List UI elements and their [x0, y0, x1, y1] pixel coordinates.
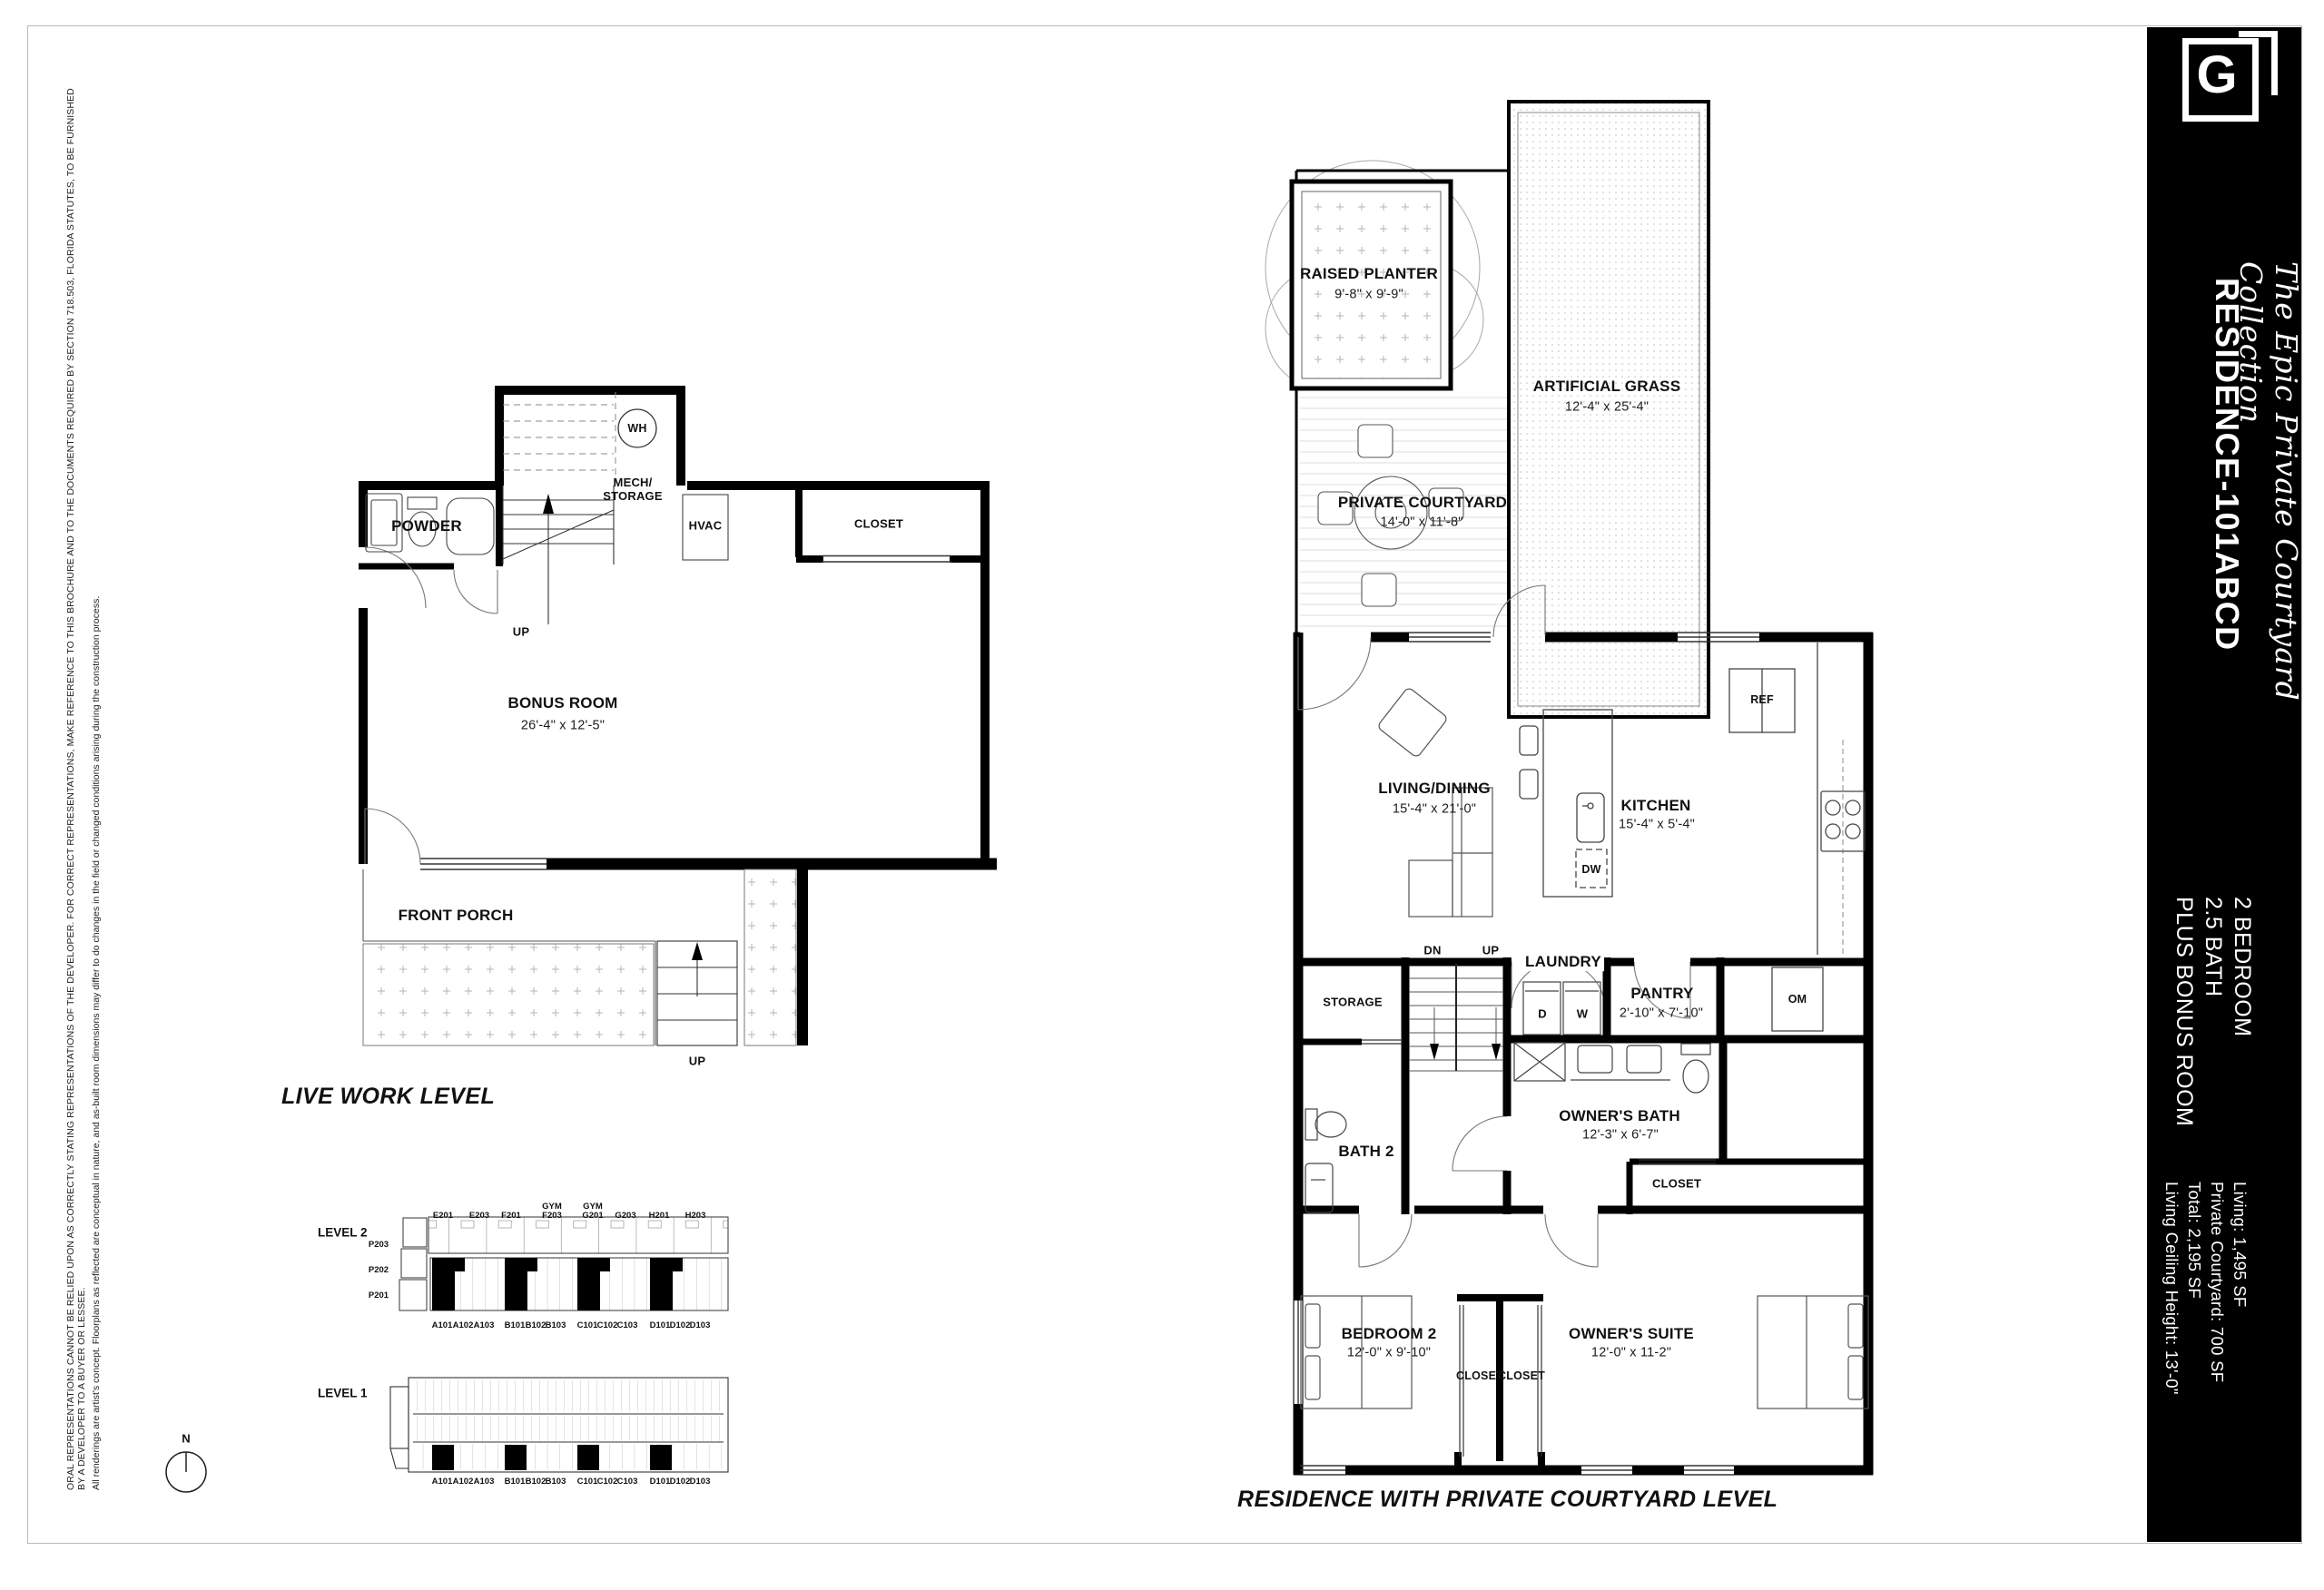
unit-label: A101	[432, 1321, 453, 1330]
north-compass	[154, 1425, 227, 1497]
brand-logo-letter: G	[2185, 44, 2249, 107]
brochure-page: ORAL REPRESENTATIONS CANNOT BE RELIED UP…	[0, 0, 2324, 1590]
door-swings	[365, 547, 497, 864]
compass-north-label: N	[182, 1433, 191, 1447]
room-dim-bonus-room: 26'-4" x 12'-5"	[521, 719, 605, 734]
unit-label: A101	[432, 1477, 453, 1487]
unit-label: C102	[597, 1477, 618, 1487]
room-label-living-dining: LIVING/DINING	[1378, 780, 1491, 798]
stat-ceiling: Living Ceiling Height: 13'-0"	[2160, 1182, 2182, 1481]
unit-label: E201	[433, 1212, 453, 1221]
entry-up-label: UP	[689, 1055, 705, 1069]
unit-label: A102	[453, 1477, 474, 1487]
unit-label: D101	[650, 1477, 671, 1487]
unit-label: A103	[474, 1321, 495, 1330]
unit-label: D103	[690, 1321, 711, 1330]
label-om: OM	[1788, 993, 1807, 1006]
room-label-closet: CLOSET	[854, 518, 903, 532]
room-dim-bedroom2: 12'-0" x 9'-10"	[1347, 1346, 1431, 1361]
unit-label: B103	[546, 1477, 566, 1487]
room-label-raised-planter: RAISED PLANTER	[1300, 265, 1438, 283]
unit-label: B103	[546, 1321, 566, 1330]
label-washer: W	[1577, 1008, 1588, 1022]
legal-disclaimer: ORAL REPRESENTATIONS CANNOT BE RELIED UP…	[65, 74, 102, 1490]
unit-label: D102	[670, 1321, 691, 1330]
residence-name: RESIDENCE-101ABCD	[2201, 278, 2246, 695]
stair-up-arrow	[1492, 1044, 1501, 1060]
room-label-mech-storage: MECH/ STORAGE	[603, 476, 662, 504]
thin-partitions	[1362, 1040, 1716, 1457]
unit-label: GYM F203	[542, 1202, 562, 1221]
level2-label: LEVEL 2	[318, 1226, 368, 1240]
room-label-closet-right: CLOSET	[1498, 1369, 1545, 1382]
residence-features: 2 BEDROOM 2.5 BATH PLUS BONUS ROOM	[2188, 897, 2257, 1205]
room-dim-owners-suite: 12'-0" x 11-2"	[1591, 1346, 1671, 1361]
unit-label: B101	[505, 1477, 526, 1487]
room-label-front-porch: FRONT PORCH	[399, 907, 514, 925]
unit-label: B102	[526, 1321, 547, 1330]
label-dryer: D	[1538, 1008, 1547, 1022]
unit-label: P201	[369, 1291, 389, 1300]
stat-living: Living: 1,495 SF	[2228, 1182, 2250, 1481]
room-label-wh: WH	[627, 422, 646, 435]
stat-courtyard: Private Courtyard: 700 SF	[2205, 1182, 2228, 1481]
stair-dn-arrow	[1430, 1044, 1439, 1060]
room-dim-raised-planter: 9'-8" x 9'-9"	[1334, 288, 1403, 303]
main-stair	[1409, 964, 1503, 1071]
unit-label: C103	[617, 1321, 638, 1330]
unit-label: B102	[526, 1477, 547, 1487]
plan-title-courtyard-level: RESIDENCE WITH PRIVATE COURTYARD LEVEL	[1237, 1487, 1777, 1513]
unit-label: P202	[369, 1266, 389, 1275]
room-label-owners-suite: OWNER'S SUITE	[1569, 1325, 1694, 1343]
unit-label: G203	[615, 1212, 635, 1221]
plan-title-live-work: LIVE WORK LEVEL	[281, 1084, 495, 1110]
unit-label: D103	[690, 1477, 711, 1487]
live-work-floorplan	[272, 363, 1017, 1107]
unit-label: E203	[469, 1212, 489, 1221]
feature-baths: 2.5 BATH	[2199, 897, 2228, 1205]
disclaimer-line-1: ORAL REPRESENTATIONS CANNOT BE RELIED UP…	[65, 74, 87, 1490]
unit-label: A103	[474, 1477, 495, 1487]
unit-label: B101	[505, 1321, 526, 1330]
room-label-laundry: LAUNDRY	[1522, 953, 1604, 971]
level1-label: LEVEL 1	[318, 1387, 368, 1400]
key-plan-level1	[309, 1366, 735, 1493]
room-dim-artificial-grass: 12'-4" x 25'-4"	[1565, 400, 1649, 416]
upper-stair-dashed	[503, 392, 615, 484]
stair-up-arrow	[543, 494, 554, 514]
room-label-private-courtyard: PRIVATE COURTYARD	[1338, 494, 1507, 512]
collection-name: The Epic Private Courtyard Collection	[2250, 261, 2304, 770]
label-ref: REF	[1750, 693, 1774, 706]
window-lines	[420, 556, 951, 870]
unit-label: H203	[685, 1212, 706, 1221]
stair-up-label: UP	[1482, 945, 1499, 958]
room-label-owners-bath: OWNER'S BATH	[1557, 1107, 1682, 1125]
unit-label: C103	[617, 1477, 638, 1487]
residence-stats: Living: 1,495 SF Private Courtyard: 700 …	[2178, 1182, 2250, 1481]
stair-treads	[503, 486, 614, 624]
laundry-appliances	[1523, 982, 1600, 1035]
disclaimer-line-2: All renderings are artist's concept. Flo…	[91, 74, 102, 1490]
room-label-bonus-room: BONUS ROOM	[508, 694, 618, 712]
room-dim-pantry: 2'-10" x 7'-10"	[1620, 1006, 1703, 1022]
raised-planter-fill	[1302, 191, 1441, 378]
unit-label: GYM G201	[582, 1202, 603, 1221]
unit-label: C102	[597, 1321, 618, 1330]
room-label-bedroom2: BEDROOM 2	[1342, 1325, 1437, 1343]
room-label-bath2: BATH 2	[1338, 1143, 1393, 1161]
feature-bedrooms: 2 BEDROOM	[2228, 897, 2257, 1205]
room-dim-kitchen: 15'-4" x 5'-4"	[1619, 818, 1695, 833]
unit-label: C101	[577, 1321, 598, 1330]
room-dim-owners-bath: 12'-3" x 6'-7"	[1582, 1128, 1659, 1143]
label-dw: DW	[1581, 863, 1600, 876]
stair-up-label: UP	[513, 626, 529, 640]
room-label-artificial-grass: ARTIFICIAL GRASS	[1533, 378, 1681, 396]
paver-band	[363, 944, 654, 1045]
paver-column	[744, 869, 796, 1045]
feature-bonus: PLUS BONUS ROOM	[2170, 897, 2199, 1205]
stat-total: Total: 2,195 SF	[2182, 1182, 2205, 1481]
unit-label: F201	[501, 1212, 521, 1221]
room-label-hvac: HVAC	[689, 520, 723, 534]
unit-label: C101	[577, 1477, 598, 1487]
unit-label: P203	[369, 1241, 389, 1250]
room-label-closet-left: CLOSET	[1456, 1369, 1503, 1382]
room-label-pantry: PANTRY	[1630, 985, 1693, 1003]
unit-label: A102	[453, 1321, 474, 1330]
unit-label: H201	[649, 1212, 670, 1221]
stair-dn-label: DN	[1423, 945, 1441, 958]
unit-label: D101	[650, 1321, 671, 1330]
room-dim-living-dining: 15'-4" x 21'-0"	[1393, 802, 1476, 818]
room-label-storage: STORAGE	[1323, 996, 1382, 1010]
room-label-owners-closet: CLOSET	[1652, 1178, 1701, 1192]
room-label-powder: POWDER	[391, 517, 462, 535]
room-dim-private-courtyard: 14'-0" x 11'-8"	[1380, 515, 1462, 531]
unit-label: D102	[670, 1477, 691, 1487]
room-label-kitchen: KITCHEN	[1621, 797, 1691, 815]
